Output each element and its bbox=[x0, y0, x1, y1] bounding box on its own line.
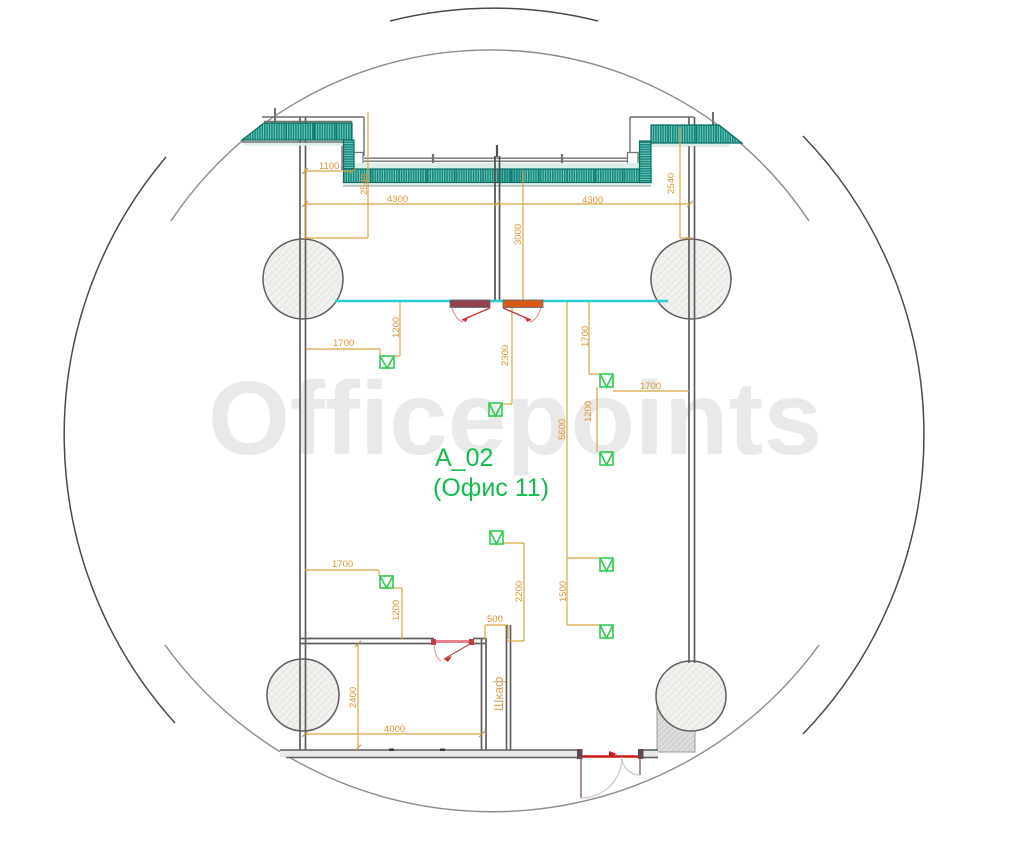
svg-text:1700: 1700 bbox=[332, 559, 353, 570]
svg-text:500: 500 bbox=[487, 614, 503, 625]
svg-text:1700: 1700 bbox=[640, 381, 661, 392]
svg-text:2400: 2400 bbox=[348, 687, 359, 708]
svg-text:5600: 5600 bbox=[557, 419, 568, 440]
svg-text:2200: 2200 bbox=[514, 581, 525, 602]
svg-text:2540: 2540 bbox=[666, 173, 677, 194]
svg-text:1700: 1700 bbox=[333, 338, 354, 349]
svg-text:2540: 2540 bbox=[359, 174, 370, 195]
svg-text:1100: 1100 bbox=[319, 161, 339, 172]
svg-text:1200: 1200 bbox=[391, 317, 402, 338]
svg-text:2300: 2300 bbox=[500, 345, 511, 366]
svg-text:1500: 1500 bbox=[558, 581, 569, 602]
svg-text:1200: 1200 bbox=[391, 600, 402, 621]
svg-text:4300: 4300 bbox=[387, 194, 408, 205]
svg-text:Шкаф: Шкаф bbox=[492, 677, 506, 711]
svg-text:4000: 4000 bbox=[384, 724, 405, 735]
svg-text:A_02: A_02 bbox=[435, 444, 493, 472]
svg-text:3000: 3000 bbox=[513, 224, 524, 245]
svg-text:(Офис 11): (Офис 11) bbox=[433, 474, 549, 502]
svg-text:1200: 1200 bbox=[583, 401, 594, 422]
svg-text:4300: 4300 bbox=[582, 195, 603, 206]
svg-text:1700: 1700 bbox=[580, 326, 591, 347]
